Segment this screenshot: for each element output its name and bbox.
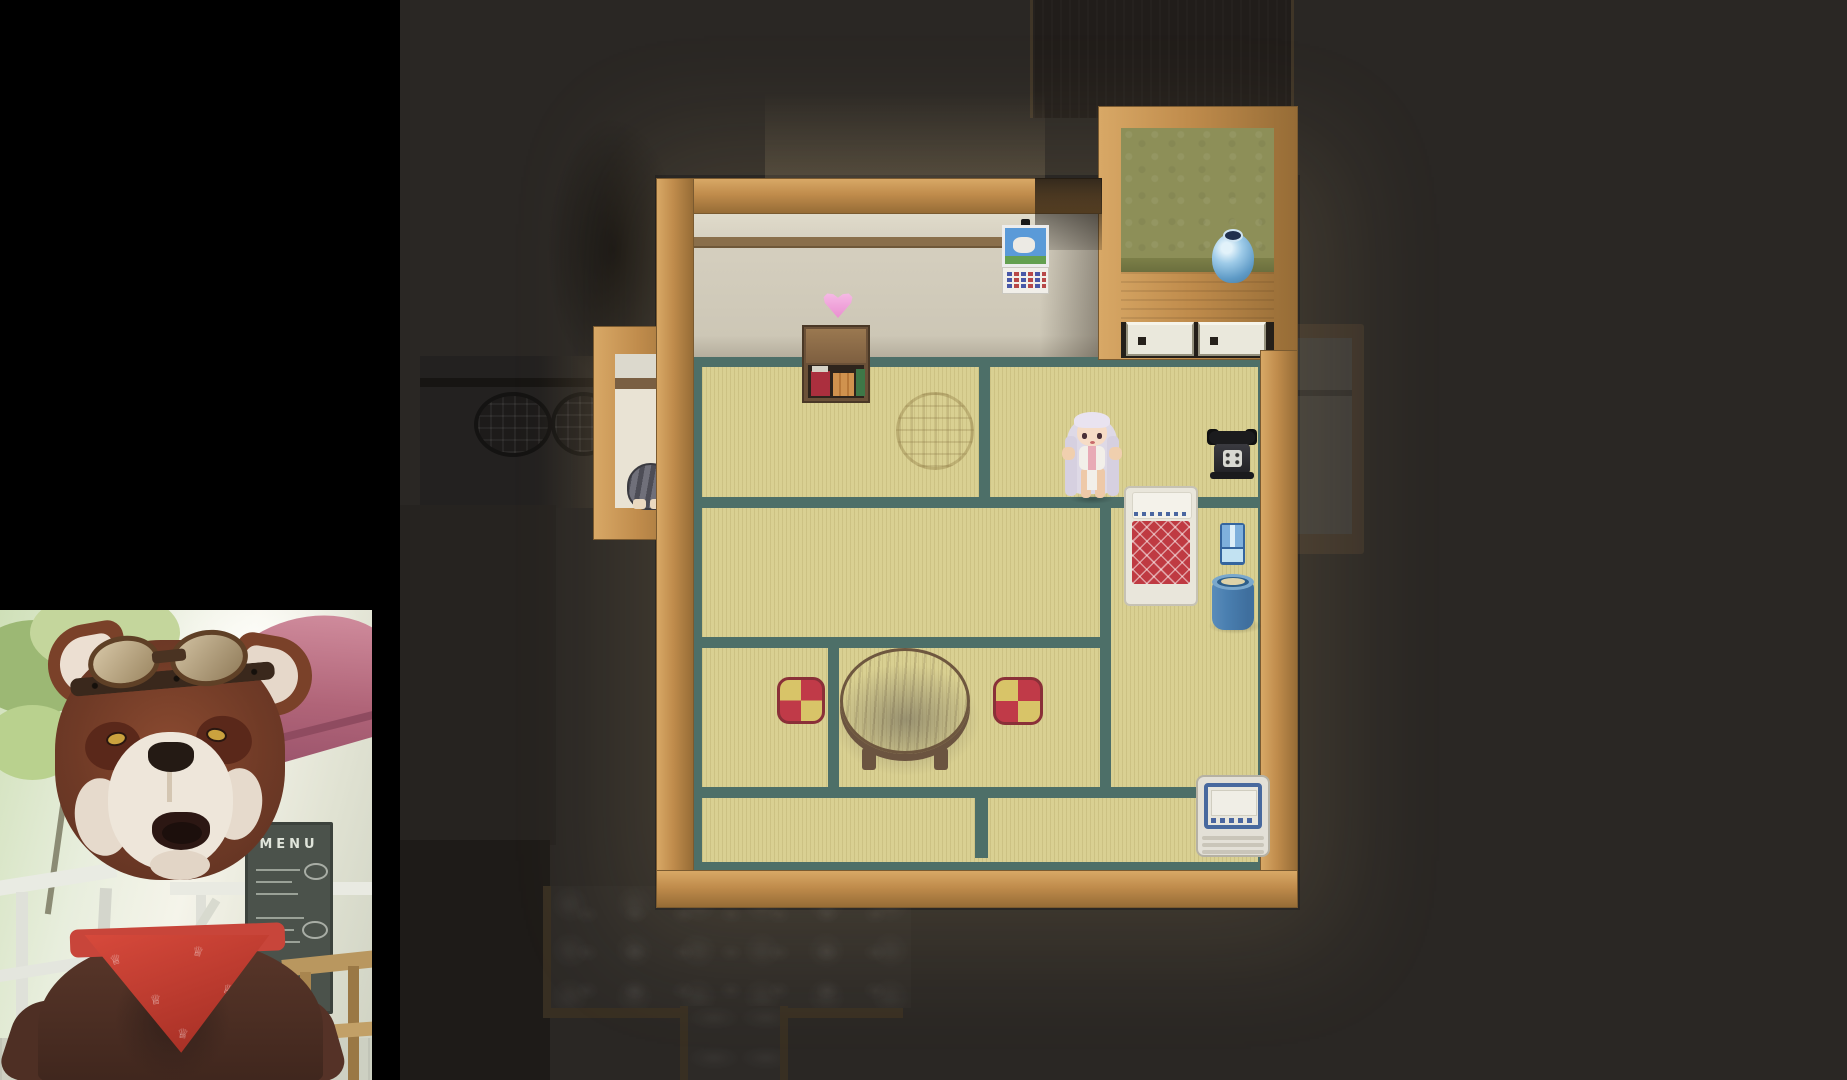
player-arm — [1109, 447, 1122, 460]
player-hair-strand — [1107, 436, 1119, 496]
player-shadow — [1070, 494, 1114, 504]
drawer[interactable] — [1198, 322, 1266, 356]
calendar-row — [1007, 284, 1046, 288]
panda-philtrum — [167, 772, 172, 802]
player-bangs — [1074, 412, 1110, 428]
calendar-picture-grass — [1005, 256, 1046, 264]
washer-groove — [1202, 850, 1264, 854]
mat-divider — [702, 787, 1258, 798]
jug-water — [1222, 549, 1243, 562]
dim-right-window-pane — [1296, 338, 1352, 534]
mat-divider — [979, 367, 990, 508]
stone-path-exit[interactable] — [680, 1006, 788, 1080]
dark-ground-bottom-left — [400, 840, 550, 1080]
washer-groove — [1202, 843, 1264, 847]
tan-books — [833, 373, 854, 396]
player-eye — [1097, 433, 1102, 439]
player-eye — [1082, 433, 1087, 439]
bucket-contents — [1221, 578, 1245, 585]
path-border — [543, 1008, 680, 1018]
table-leg — [862, 748, 876, 770]
washer-groove — [1202, 836, 1264, 840]
background-pillar — [1030, 0, 1294, 118]
jug-stripe — [1230, 525, 1235, 547]
pillow-trim — [1134, 512, 1188, 516]
washing-machine[interactable] — [1196, 775, 1270, 857]
calendar-row — [1007, 272, 1046, 276]
futon-blanket — [1132, 521, 1190, 584]
mat-divider — [975, 798, 988, 858]
light-glow-above-room — [765, 92, 1045, 180]
panda-mouth-inner — [162, 822, 202, 844]
futon-bed[interactable] — [1124, 486, 1198, 606]
phone-dial-plate — [1223, 450, 1242, 467]
drawer[interactable] — [1126, 322, 1194, 356]
chalk-line — [256, 869, 300, 871]
phone-base — [1210, 472, 1254, 479]
cat-paw — [633, 499, 646, 509]
calendar-picture-animal — [1013, 237, 1035, 253]
chalk-line — [256, 881, 292, 883]
panda-nose-icon — [148, 742, 194, 772]
player-arm — [1062, 447, 1075, 460]
calendar-sheet[interactable] — [1002, 267, 1049, 294]
player-mouth — [1090, 441, 1095, 444]
screenshot-root: MENU ♕ ♕ ♕ ♕ ♕ — [0, 0, 1847, 1080]
calendar-picture[interactable] — [1002, 225, 1049, 267]
panda-chin-fluff — [150, 850, 210, 880]
crown-pattern-icon: ♕ — [149, 992, 163, 1008]
water-jug[interactable] — [1220, 523, 1245, 565]
chalk-cup-doodle-icon — [302, 921, 328, 939]
green-book — [856, 369, 865, 396]
dim-right-window-bar — [1296, 390, 1352, 396]
round-table[interactable] — [840, 648, 970, 754]
path-border — [772, 1008, 903, 1018]
crown-pattern-icon: ♕ — [176, 1026, 189, 1042]
mat-divider — [702, 637, 1106, 648]
alcove-wall — [1121, 128, 1274, 264]
white-book — [812, 366, 828, 372]
chalk-line — [256, 917, 304, 919]
bookshelf[interactable] — [802, 325, 870, 403]
alcove-counter[interactable] — [1121, 272, 1274, 322]
washer-trim — [1211, 818, 1255, 823]
chalk-cup-doodle-icon — [304, 863, 328, 880]
round-straw-mat[interactable] — [896, 392, 974, 470]
washer-pillow — [1211, 790, 1257, 816]
crown-pattern-icon: ♕ — [191, 944, 205, 961]
drawer-handle-icon — [1138, 337, 1146, 345]
vase-mouth — [1223, 229, 1243, 242]
chalk-line — [256, 893, 298, 895]
floor-cushion[interactable] — [993, 677, 1043, 725]
room-frame-left — [656, 178, 694, 908]
dark-ground-left — [400, 505, 556, 845]
player-sash — [1088, 446, 1096, 470]
calendar-row — [1007, 278, 1046, 282]
mat-divider — [1100, 497, 1111, 798]
player-hair-strand — [1065, 436, 1077, 496]
bookshelf-top — [806, 329, 866, 363]
player-skirt — [1087, 468, 1097, 490]
drawer-handle-icon — [1210, 337, 1218, 345]
phone-handset — [1209, 431, 1255, 444]
floor-cushion[interactable] — [777, 677, 825, 724]
webcam-overlay: MENU ♕ ♕ ♕ ♕ ♕ — [0, 610, 372, 1080]
picture-rail — [692, 237, 1010, 248]
room-frame-bottom — [656, 870, 1298, 908]
red-book — [811, 371, 830, 396]
table-leg — [934, 748, 948, 770]
